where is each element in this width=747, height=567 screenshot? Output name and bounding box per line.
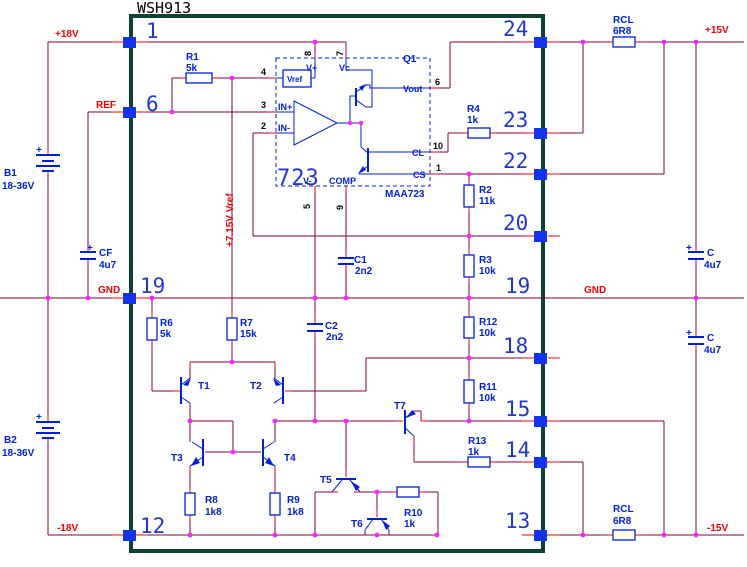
label-comp: COMP bbox=[329, 176, 356, 186]
resistor-r4 bbox=[468, 128, 490, 138]
label-r7-value: 15k bbox=[240, 329, 257, 340]
label-r11-name: R11 bbox=[479, 382, 497, 393]
723-pin-8: 8 bbox=[303, 51, 313, 56]
label-r13-name: R13 bbox=[468, 436, 487, 447]
label-vc: Vc bbox=[339, 63, 350, 73]
label-chip-723: 723 bbox=[277, 166, 320, 191]
723-pin-10: 10 bbox=[433, 141, 443, 151]
page-title: WSH913 bbox=[137, 0, 191, 17]
battery-b2 bbox=[36, 422, 60, 438]
label-t7: T7 bbox=[394, 401, 406, 412]
label-cs: CS bbox=[413, 170, 426, 180]
q1-transistor-diagonals bbox=[356, 85, 368, 173]
label-in-plus: IN+ bbox=[278, 102, 292, 112]
resistor-rcl-bot bbox=[613, 530, 635, 540]
pad-pin-12 bbox=[123, 530, 136, 541]
label-r9-value: 1k8 bbox=[287, 507, 304, 518]
rail-label-ref: REF bbox=[96, 100, 116, 111]
label-r6-name: R6 bbox=[160, 318, 173, 329]
rail-label-minus18v: -18V bbox=[57, 523, 78, 534]
pin-number-14: 14 bbox=[505, 438, 530, 462]
label-t2: T2 bbox=[250, 381, 262, 392]
label-rcl-bot-value: 6R8 bbox=[613, 516, 632, 527]
723-pin-5: 5 bbox=[302, 204, 312, 209]
rail-label-plus15v: +15V bbox=[705, 25, 729, 36]
label-r6-value: 5k bbox=[160, 329, 172, 340]
label-r3-name: R3 bbox=[479, 255, 492, 266]
pin-number-6: 6 bbox=[146, 92, 159, 116]
pin-number-19-left: 19 bbox=[140, 274, 165, 298]
rail-label-gnd-right: GND bbox=[584, 285, 606, 296]
t6-arrow-icon bbox=[382, 520, 390, 530]
pad-pin-24 bbox=[534, 37, 547, 48]
pad-pin-6 bbox=[123, 107, 136, 118]
pin-number-24: 24 bbox=[503, 17, 528, 41]
resistor-r12 bbox=[464, 317, 474, 338]
battery-b1 bbox=[36, 155, 60, 171]
723-pin-3: 3 bbox=[261, 100, 266, 110]
label-vref-block: Vref bbox=[287, 75, 302, 84]
label-cf-name: CF bbox=[99, 248, 112, 259]
label-vplus: V+ bbox=[306, 63, 317, 73]
resistor-r3 bbox=[464, 255, 474, 277]
t3-arrow-icon bbox=[191, 457, 200, 466]
label-c2-name: C2 bbox=[325, 321, 338, 332]
723-pin-1: 1 bbox=[436, 163, 441, 173]
wires-bottom bbox=[131, 298, 744, 535]
pad-pin-20 bbox=[534, 231, 547, 242]
723-pin-9: 9 bbox=[335, 205, 345, 210]
schematic-canvas: WSH913 1 6 19 12 24 23 22 20 19 18 15 14… bbox=[0, 0, 747, 567]
capacitor-c2 bbox=[307, 324, 323, 331]
pad-pin-18 bbox=[534, 353, 547, 364]
label-cl: CL bbox=[412, 148, 424, 158]
label-r2-name: R2 bbox=[479, 185, 492, 196]
t5-arrow-icon bbox=[351, 481, 360, 491]
label-b1-value: 18-36V bbox=[2, 181, 35, 192]
label-vout: Vout bbox=[403, 84, 422, 94]
label-c-bot-name: C bbox=[707, 333, 714, 344]
label-r13-value: 1k bbox=[468, 447, 480, 458]
label-b2-name: B2 bbox=[4, 435, 17, 446]
schematic-page: WSH913 1 6 19 12 24 23 22 20 19 18 15 14… bbox=[0, 0, 747, 567]
label-r10-name: R10 bbox=[404, 508, 423, 519]
resistor-r13 bbox=[468, 457, 490, 467]
label-c2-value: 2n2 bbox=[326, 332, 344, 343]
label-r11-value: 10k bbox=[479, 393, 496, 404]
label-t6: T6 bbox=[351, 519, 363, 530]
pad-pin-13 bbox=[534, 530, 547, 541]
resistor-r8 bbox=[185, 493, 195, 515]
pin-number-23: 23 bbox=[503, 108, 528, 132]
rail-label-plus18v: +18V bbox=[55, 29, 79, 40]
label-b2-plus: + bbox=[36, 412, 42, 423]
pin-number-13: 13 bbox=[505, 509, 530, 533]
label-b1-name: B1 bbox=[4, 168, 17, 179]
label-r10-value: 1k bbox=[404, 519, 416, 530]
label-r1-value: 5k bbox=[186, 63, 198, 74]
label-c1-name: C1 bbox=[354, 255, 367, 266]
resistor-r11 bbox=[464, 380, 474, 403]
resistor-r2 bbox=[464, 185, 474, 207]
label-b1-plus: + bbox=[36, 145, 42, 156]
label-c1-value: 2n2 bbox=[355, 266, 373, 277]
ic-outline-wsh913 bbox=[131, 16, 543, 551]
label-r4-name: R4 bbox=[467, 104, 480, 115]
723-pin-6: 6 bbox=[435, 77, 440, 87]
label-t4: T4 bbox=[284, 453, 296, 464]
label-q1: Q1 bbox=[403, 54, 417, 65]
label-r4-value: 1k bbox=[467, 115, 479, 126]
pin-number-19-right: 19 bbox=[505, 274, 530, 298]
label-c-top-name: C bbox=[707, 248, 714, 259]
label-r3-value: 10k bbox=[479, 266, 496, 277]
label-c-bot-value: 4u7 bbox=[704, 345, 722, 356]
label-in-minus: IN- bbox=[278, 123, 290, 133]
label-r9-name: R9 bbox=[287, 495, 300, 506]
pin-number-20: 20 bbox=[503, 211, 528, 235]
label-b2-value: 18-36V bbox=[2, 448, 35, 459]
resistor-r10 bbox=[397, 487, 419, 497]
label-r1-name: R1 bbox=[186, 52, 199, 63]
resistor-r6 bbox=[147, 318, 157, 340]
label-t1: T1 bbox=[198, 381, 210, 392]
t4-arrow-icon bbox=[265, 457, 274, 466]
resistor-r7 bbox=[227, 318, 237, 340]
resistor-r1 bbox=[186, 73, 212, 83]
label-r2-value: 11k bbox=[479, 196, 496, 207]
q1-lower-emitter-arrow-icon bbox=[358, 166, 366, 174]
resistor-rcl-top bbox=[613, 37, 635, 47]
pad-pin-22 bbox=[534, 169, 547, 180]
pin-number-22: 22 bbox=[503, 149, 528, 173]
label-r7-name: R7 bbox=[240, 318, 253, 329]
label-r12-value: 10k bbox=[479, 328, 496, 339]
723-pin-7: 7 bbox=[335, 51, 345, 56]
q1-upper-emitter-arrow-icon bbox=[359, 84, 366, 91]
pad-pin-15 bbox=[534, 416, 547, 427]
pad-pin-23 bbox=[534, 128, 547, 139]
label-t5: T5 bbox=[320, 475, 332, 486]
label-t3: T3 bbox=[171, 453, 183, 464]
pin-number-12: 12 bbox=[140, 514, 165, 538]
pin-number-18: 18 bbox=[503, 334, 528, 358]
q1-transistor-bars bbox=[356, 88, 368, 172]
label-part-maa723: MAA723 bbox=[385, 189, 425, 200]
label-c-bot-plus: + bbox=[686, 328, 692, 339]
label-r12-name: R12 bbox=[479, 317, 498, 328]
label-c-top-value: 4u7 bbox=[704, 260, 722, 271]
label-cf-plus: + bbox=[87, 243, 93, 254]
label-rcl-top-name: RCL bbox=[613, 15, 634, 26]
label-cf-value: 4u7 bbox=[99, 260, 117, 271]
723-pin-4: 4 bbox=[261, 67, 266, 77]
pad-pin-14 bbox=[534, 457, 547, 468]
pad-pin-1 bbox=[123, 37, 136, 48]
pin-number-1: 1 bbox=[146, 19, 159, 43]
capacitor-c1 bbox=[338, 258, 354, 264]
label-vminus: V- bbox=[303, 176, 312, 186]
rail-label-vref-7v15: +7.15V Vref bbox=[225, 193, 236, 247]
label-c-top-plus: + bbox=[686, 243, 692, 254]
723-pin-2: 2 bbox=[261, 121, 266, 131]
pad-pin-19 bbox=[123, 293, 136, 304]
resistor-r9 bbox=[270, 493, 280, 515]
label-r8-value: 1k8 bbox=[205, 507, 222, 518]
label-r8-name: R8 bbox=[205, 495, 218, 506]
pin-number-15: 15 bbox=[505, 397, 530, 421]
rail-label-gnd-left: GND bbox=[98, 285, 120, 296]
label-rcl-bot-name: RCL bbox=[613, 504, 634, 515]
opamp-triangle bbox=[294, 101, 337, 145]
label-rcl-top-value: 6R8 bbox=[613, 26, 632, 37]
rail-label-minus15v: -15V bbox=[707, 523, 728, 534]
